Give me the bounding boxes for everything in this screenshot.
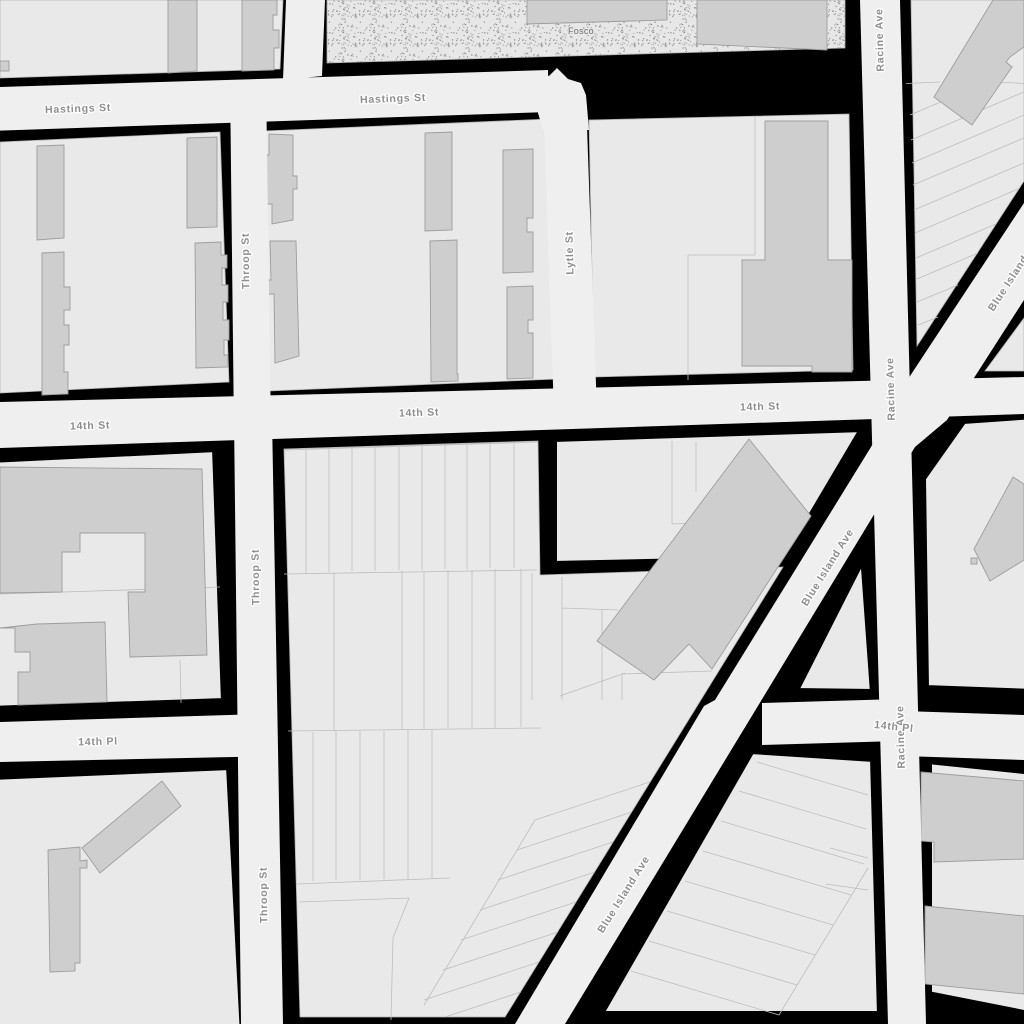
svg-text:14th Pl: 14th Pl [78,735,118,748]
svg-text:Throop St: Throop St [240,233,253,289]
svg-text:14th St: 14th St [399,406,440,419]
svg-text:Racine Ave: Racine Ave [894,705,908,769]
svg-text:Hastings St: Hastings St [45,102,111,116]
svg-text:Hastings St: Hastings St [360,92,426,106]
svg-text:Racine Ave: Racine Ave [884,357,898,421]
svg-text:Racine Ave: Racine Ave [873,8,887,72]
svg-text:Throop St: Throop St [250,549,263,605]
svg-text:14th St: 14th St [740,400,781,413]
svg-text:Fosco: Fosco [568,26,594,36]
svg-text:Lytle St: Lytle St [564,231,577,275]
svg-text:Throop St: Throop St [258,867,271,923]
svg-text:14th St: 14th St [70,419,111,432]
